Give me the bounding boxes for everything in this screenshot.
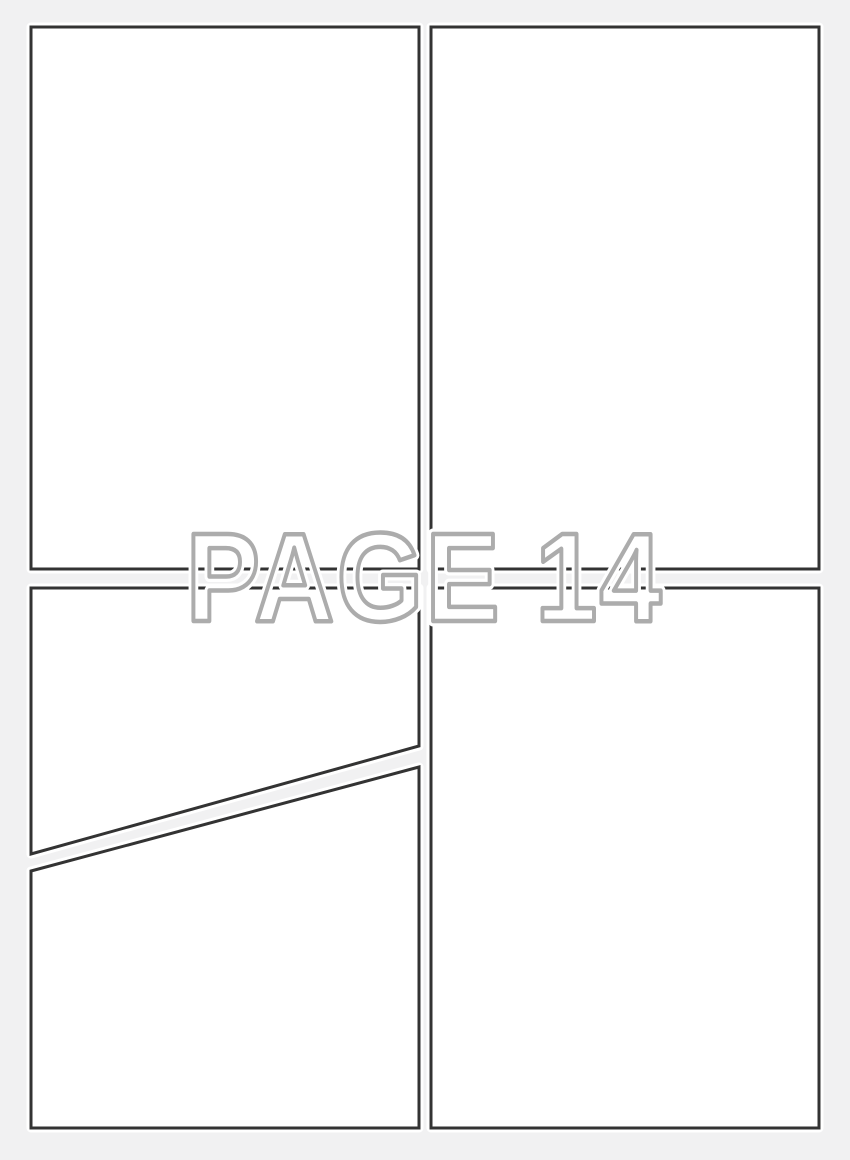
panel-top-right xyxy=(431,27,819,569)
panel-bottom-right xyxy=(431,588,819,1128)
page-number-watermark: PAGE 14 PAGE 14 xyxy=(186,507,664,648)
panel-top-left xyxy=(31,27,419,569)
comic-page-template: PAGE 14 PAGE 14 xyxy=(0,0,850,1160)
page-number-text: PAGE 14 xyxy=(186,507,664,648)
panel-frame xyxy=(31,27,419,569)
panel-frame xyxy=(431,27,819,569)
page-canvas: PAGE 14 PAGE 14 xyxy=(0,0,850,1160)
panel-frame xyxy=(431,588,819,1128)
